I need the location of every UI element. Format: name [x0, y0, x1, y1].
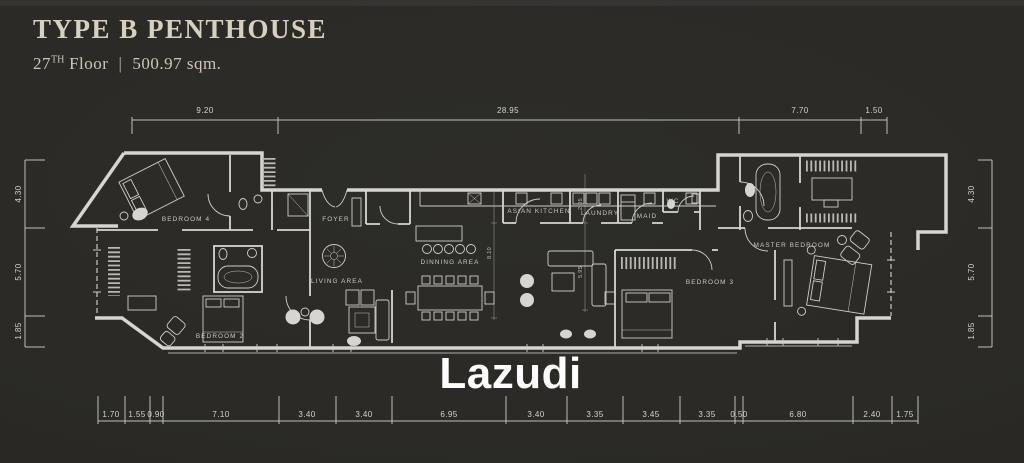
bed-icon — [119, 159, 184, 220]
stool-icon — [445, 245, 454, 254]
toilet-icon — [239, 199, 247, 210]
room-label-dinning-area: DINNING AREA — [420, 259, 479, 266]
armchair-icon — [346, 290, 359, 305]
dim-label: 1.85 — [14, 322, 23, 339]
dim-label: 3.40 — [298, 410, 315, 419]
toilet-icon — [219, 249, 227, 260]
dim-label: 4.30 — [967, 185, 976, 202]
armchair-icon — [520, 293, 534, 307]
chandelier-icon — [323, 245, 346, 268]
bed-icon — [622, 290, 672, 338]
dim-label: 9.20 — [196, 106, 213, 115]
side-table-icon — [120, 212, 128, 220]
sofa-icon — [376, 300, 389, 340]
armchair-icon — [286, 310, 301, 325]
armchair-icon — [361, 290, 374, 305]
dim-label: 1.55 — [128, 410, 145, 419]
stool-icon — [467, 245, 476, 254]
dim-label: 2.40 — [863, 410, 880, 419]
side-table-icon — [301, 308, 309, 316]
room-label-bedroom-4: BEDROOM 4 — [162, 216, 210, 223]
bathtub-icon — [224, 271, 252, 283]
tv-console-icon — [784, 260, 792, 306]
armchair-icon — [584, 330, 596, 339]
dimension-left: 4.30 5.70 1.85 — [14, 160, 45, 347]
bathtub-icon — [760, 172, 776, 212]
dim-label: 6.80 — [789, 410, 806, 419]
dimension-right: 4.30 5.70 1.85 — [967, 160, 992, 347]
room-label-maid: MAID — [637, 213, 657, 220]
dim-label: 3.40 — [527, 410, 544, 419]
dim-label: 7.10 — [212, 410, 229, 419]
room-label-asian-kitchen: ASIAN KITCHEN — [507, 208, 570, 215]
table-icon — [128, 296, 156, 310]
exterior-walls — [73, 153, 946, 353]
table-icon — [349, 307, 375, 333]
armchair-icon — [560, 330, 572, 339]
stool-icon — [456, 245, 465, 254]
dining-table-icon — [418, 286, 482, 310]
dim-label: 0.50 — [730, 410, 747, 419]
door-arc — [208, 194, 230, 216]
watermark-logo: Lazudi — [439, 349, 581, 399]
stool-icon — [423, 245, 432, 254]
sink-icon — [692, 194, 699, 203]
dim-label: 1.70 — [102, 410, 119, 419]
dim-label: 1.85 — [967, 322, 976, 339]
counter-icon — [416, 226, 462, 241]
armchair-icon — [157, 315, 187, 347]
dimension-top: 9.20 28.95 7.70 1.50 — [132, 106, 887, 134]
dim-label: 3.35 — [698, 410, 715, 419]
bathroom-fixtures — [214, 164, 780, 292]
dim-label: 0.90 — [147, 410, 164, 419]
side-table-icon — [605, 292, 615, 304]
room-label-laundry: LAUNDRY — [581, 210, 619, 217]
bed-icon — [797, 245, 873, 324]
stool-icon — [434, 245, 443, 254]
door-arc — [692, 250, 712, 270]
dining-furniture — [406, 226, 494, 320]
console-icon — [352, 198, 361, 226]
sink-icon — [248, 249, 257, 258]
dim-label: 1.50 — [865, 106, 882, 115]
door-arc — [380, 206, 398, 224]
room-label-bedroom-3: BEDROOM 3 — [686, 279, 734, 286]
dim-label: 5.95 — [578, 266, 584, 278]
sink-icon — [745, 183, 755, 197]
room-label-foyer: FOYER — [322, 216, 350, 223]
sofa-icon — [548, 251, 593, 266]
dim-label: 8.10 — [487, 247, 493, 259]
toilet-icon — [744, 211, 753, 222]
beds — [119, 159, 873, 347]
desk-icon — [812, 178, 852, 200]
dim-label: 3.35 — [586, 410, 603, 419]
dim-label: 3.40 — [355, 410, 372, 419]
side-table-icon — [838, 236, 847, 245]
entry-double-door-icon — [322, 190, 347, 207]
floor-plan-page: TYPE B PENTHOUSE 27TH Floor|500.97 sqm. … — [0, 0, 1024, 463]
dim-label: 4.30 — [14, 185, 23, 202]
room-label-master-bedroom: MASTER BEDROOM — [754, 242, 831, 249]
dim-label: 5.70 — [967, 263, 976, 280]
dim-label: 5.70 — [14, 263, 23, 280]
chair-icon — [824, 200, 838, 207]
room-label-wc: WC — [667, 198, 680, 205]
dim-label: 3.45 — [642, 410, 659, 419]
room-label-living-area: LIVING AREA — [311, 278, 363, 285]
dim-label: 7.70 — [791, 106, 808, 115]
dimension-bottom: 1.70 1.55 0.90 7.10 3.40 3.40 6.95 3.40 … — [98, 396, 918, 424]
dim-label: 1.75 — [896, 410, 913, 419]
sink-icon — [254, 195, 262, 203]
wardrobes — [114, 158, 858, 296]
dim-label: 6.95 — [440, 410, 457, 419]
sofa-icon — [592, 264, 606, 306]
armchair-icon — [347, 336, 361, 346]
armchair-icon — [520, 274, 534, 288]
armchair-icon — [310, 310, 325, 325]
armchair-icon — [130, 205, 150, 223]
room-label-bedroom-2: BEDROOM 2 — [196, 333, 244, 340]
table-icon — [552, 273, 574, 291]
dim-label: 28.95 — [497, 106, 519, 115]
